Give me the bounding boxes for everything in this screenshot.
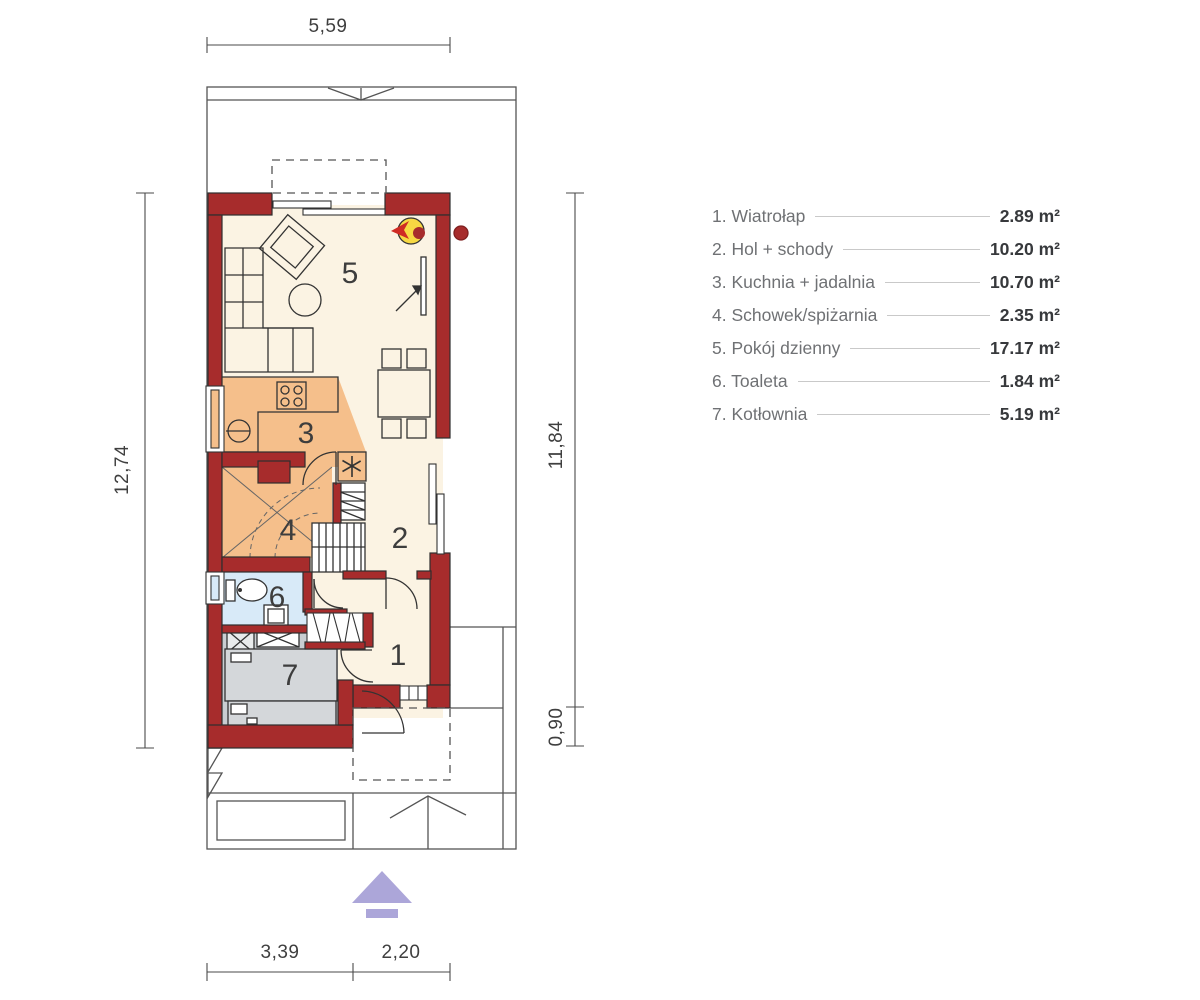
room-number-3: 3 — [298, 417, 315, 450]
toilet-window — [206, 572, 224, 604]
legend-label: 5. Pokój dzienny — [712, 338, 840, 359]
room-number-6: 6 — [269, 581, 286, 614]
dim-bottom — [207, 963, 450, 981]
kitchen-window — [206, 386, 224, 452]
entrance-arrow-icon — [352, 871, 412, 918]
dim-label-left: 12,74 — [112, 445, 133, 495]
floor-plan-page: { "legend": { "items": [ {"number":"1","… — [0, 0, 1200, 1000]
room-number-7: 7 — [282, 659, 299, 692]
legend-area-value: 2.35 m² — [1000, 305, 1060, 326]
room-legend: 1. Wiatrołap 2.89 m² 2. Hol + schody 10.… — [712, 200, 1060, 431]
dim-top — [207, 37, 450, 53]
floor-plan-drawing: 1 2 3 4 5 6 7 5,59 — [0, 0, 1200, 1000]
entry-door-threshold — [400, 686, 427, 700]
legend-label: 4. Schowek/spiżarnia — [712, 305, 877, 326]
toilet-icon — [226, 579, 267, 601]
legend-label: 6. Toaleta — [712, 371, 788, 392]
legend-label: 3. Kuchnia + jadalnia — [712, 272, 875, 293]
wardrobe — [307, 613, 363, 642]
legend-row-4: 4. Schowek/spiżarnia 2.35 m² — [712, 299, 1060, 332]
legend-leader-line — [850, 348, 980, 349]
legend-area-value: 1.84 m² — [1000, 371, 1060, 392]
legend-leader-line — [798, 381, 990, 382]
room-number-4: 4 — [280, 514, 297, 547]
legend-row-6: 6. Toaleta 1.84 m² — [712, 365, 1060, 398]
legend-area-value: 2.89 m² — [1000, 206, 1060, 227]
dim-label-right-lower: 0,90 — [546, 708, 567, 747]
legend-area-value: 10.70 m² — [990, 272, 1060, 293]
legend-leader-line — [817, 414, 989, 415]
dim-label-right-upper: 11,84 — [546, 421, 567, 470]
stairs — [312, 523, 365, 572]
legend-area-value: 10.20 m² — [990, 239, 1060, 260]
legend-label: 1. Wiatrołap — [712, 206, 805, 227]
room-number-1: 1 — [390, 639, 407, 672]
dim-label-bottom-right: 2,20 — [382, 942, 421, 963]
shelf-unit — [340, 483, 365, 520]
dim-left — [136, 193, 154, 748]
room-number-5: 5 — [342, 257, 359, 290]
legend-leader-line — [885, 282, 980, 283]
legend-area-value: 5.19 m² — [1000, 404, 1060, 425]
legend-row-7: 7. Kotłownia 5.19 m² — [712, 398, 1060, 431]
legend-label: 2. Hol + schody — [712, 239, 833, 260]
room-number-2: 2 — [392, 522, 409, 555]
legend-row-5: 5. Pokój dzienny 17.17 m² — [712, 332, 1060, 365]
legend-row-3: 3. Kuchnia + jadalnia 10.70 m² — [712, 266, 1060, 299]
dim-label-top: 5,59 — [309, 16, 348, 37]
legend-row-1: 1. Wiatrołap 2.89 m² — [712, 200, 1060, 233]
legend-label: 7. Kotłownia — [712, 404, 807, 425]
fridge — [338, 452, 366, 481]
legend-leader-line — [843, 249, 980, 250]
chimney-dot — [454, 226, 468, 240]
chimney — [258, 461, 290, 483]
dim-label-bottom-left: 3,39 — [261, 942, 300, 963]
legend-row-2: 2. Hol + schody 10.20 m² — [712, 233, 1060, 266]
legend-area-value: 17.17 m² — [990, 338, 1060, 359]
legend-leader-line — [815, 216, 989, 217]
legend-leader-line — [887, 315, 989, 316]
dim-right — [566, 193, 584, 746]
rear-terrace-outline — [272, 160, 386, 193]
